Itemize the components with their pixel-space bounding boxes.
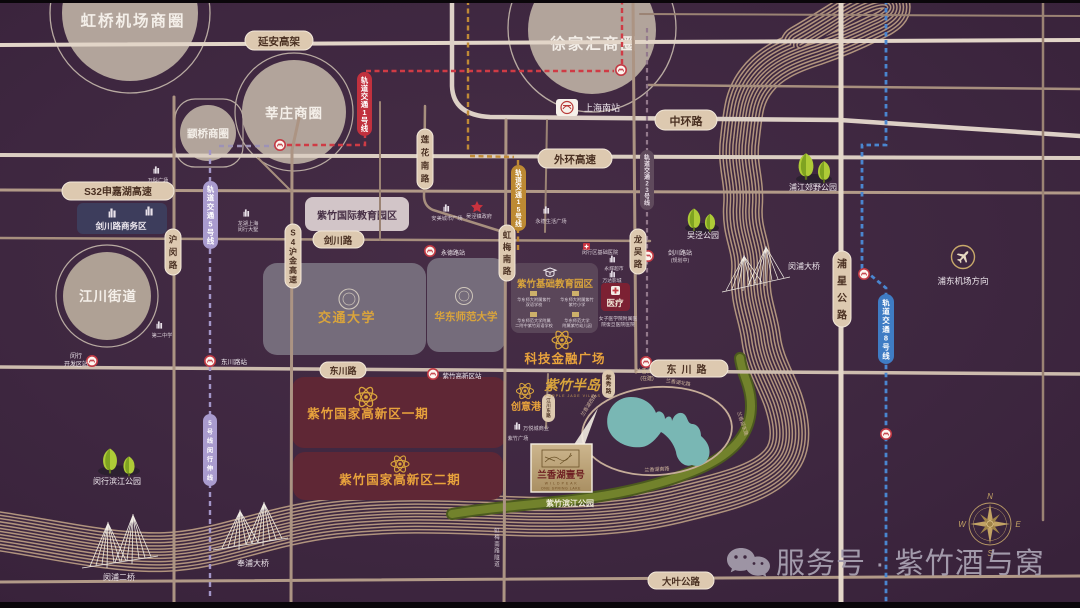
svg-text:N: N xyxy=(987,492,993,501)
svg-text:紫竹小学: 紫竹小学 xyxy=(569,301,586,308)
svg-text:轨道交通8号线: 轨道交通8号线 xyxy=(882,297,890,360)
svg-text:中环路: 中环路 xyxy=(670,114,704,128)
svg-text:江川街道: 江川街道 xyxy=(79,288,137,304)
svg-text:紫竹基础教育园区: 紫竹基础教育园区 xyxy=(517,278,594,290)
svg-text:吴泾镇政府: 吴泾镇政府 xyxy=(466,212,492,220)
svg-text:双语学校: 双语学校 xyxy=(526,301,544,308)
svg-text:轨道交通5号线: 轨道交通5号线 xyxy=(207,184,215,246)
svg-text:闵行: 闵行 xyxy=(70,352,82,360)
svg-text:E: E xyxy=(1015,520,1021,529)
svg-text:永德生活广场: 永德生活广场 xyxy=(535,217,566,225)
svg-text:第二中学: 第二中学 xyxy=(152,331,173,339)
svg-text:安美城市广场: 安美城市广场 xyxy=(431,214,462,222)
svg-text:东川路: 东川路 xyxy=(667,363,712,376)
svg-text:浦江郊野公园: 浦江郊野公园 xyxy=(789,182,837,192)
svg-text:轨道交通15号线: 轨道交通15号线 xyxy=(515,168,522,228)
svg-text:服务号 · 紫竹酒与窝: 服务号 · 紫竹酒与窝 xyxy=(776,547,1045,580)
svg-text:剑川路商务区: 剑川路商务区 xyxy=(94,221,147,231)
svg-text:院復旦医院医院: 院復旦医院医院 xyxy=(601,321,635,328)
svg-text:上海南站: 上海南站 xyxy=(584,102,620,113)
svg-text:交通大学: 交通大学 xyxy=(318,310,376,325)
svg-text:龙湖上海: 龙湖上海 xyxy=(238,219,259,227)
svg-text:华东师范大学: 华东师范大学 xyxy=(435,310,498,323)
svg-text:紫竹滨江公园: 紫竹滨江公园 xyxy=(546,498,594,508)
svg-text:虹梅南路隧道: 虹梅南路隧道 xyxy=(494,527,500,569)
svg-text:闵浦大桥: 闵浦大桥 xyxy=(788,261,820,271)
svg-text:紫竹半岛: 紫竹半岛 xyxy=(544,377,601,393)
svg-text:龙吴路: 龙吴路 xyxy=(633,234,643,269)
svg-text:大叶公路: 大叶公路 xyxy=(662,576,701,588)
svg-text:闵浦二桥: 闵浦二桥 xyxy=(103,572,135,582)
svg-text:兰香湖壹号: 兰香湖壹号 xyxy=(537,469,585,481)
svg-text:女子医学院附属医: 女子医学院附属医 xyxy=(599,315,638,322)
svg-text:江川东路: 江川东路 xyxy=(545,397,551,419)
svg-text:紫竹国际教育园区: 紫竹国际教育园区 xyxy=(317,209,397,222)
svg-text:ONE SPRING LAKE: ONE SPRING LAKE xyxy=(541,487,581,491)
svg-text:紫秀路: 紫秀路 xyxy=(605,374,612,395)
svg-text:莘庄商圈: 莘庄商圈 xyxy=(265,105,323,121)
svg-text:延安高架: 延安高架 xyxy=(257,35,300,48)
svg-text:5号线闵行伸线: 5号线闵行伸线 xyxy=(206,420,214,482)
svg-text:闵行滨江公园: 闵行滨江公园 xyxy=(93,476,141,486)
svg-text:附属紫竹幼儿园: 附属紫竹幼儿园 xyxy=(562,322,591,329)
svg-text:轨道交通1号线: 轨道交通1号线 xyxy=(361,75,369,133)
svg-text:万科广场: 万科广场 xyxy=(148,176,169,184)
svg-text:闵行大墅: 闵行大墅 xyxy=(238,225,259,233)
svg-text:外环高速: 外环高速 xyxy=(553,153,596,166)
svg-text:紫竹广场: 紫竹广场 xyxy=(508,434,529,442)
svg-text:S32申嘉湖高速: S32申嘉湖高速 xyxy=(84,185,152,198)
svg-text:医疗: 医疗 xyxy=(606,298,624,308)
svg-text:万达影城: 万达影城 xyxy=(602,277,621,284)
svg-text:剑川路: 剑川路 xyxy=(323,235,353,247)
svg-text:创意港: 创意港 xyxy=(510,400,542,413)
svg-text:(规划中): (规划中) xyxy=(671,257,690,264)
svg-text:东川路站: 东川路站 xyxy=(221,357,248,366)
svg-text:(在建): (在建) xyxy=(640,375,654,382)
svg-text:东川路: 东川路 xyxy=(329,365,357,376)
svg-text:紫竹国家高新区二期: 紫竹国家高新区二期 xyxy=(339,472,461,487)
svg-text:科技金融广场: 科技金融广场 xyxy=(524,351,605,366)
svg-text:吴泾公园: 吴泾公园 xyxy=(687,231,719,240)
svg-text:紫竹国家高新区一期: 紫竹国家高新区一期 xyxy=(307,406,429,421)
svg-text:W I L D P E A K: W I L D P E A K xyxy=(545,482,578,486)
svg-text:永辉超市: 永辉超市 xyxy=(604,265,623,272)
svg-text:闵行区基础医院: 闵行区基础医院 xyxy=(582,248,619,256)
svg-text:开发区站: 开发区站 xyxy=(64,360,88,368)
svg-text:轨道交通23号线: 轨道交通23号线 xyxy=(644,154,650,208)
svg-text:万悦城商业: 万悦城商业 xyxy=(523,424,549,432)
svg-text:沪闵路: 沪闵路 xyxy=(169,235,178,270)
svg-text:虹桥机场商圈: 虹桥机场商圈 xyxy=(80,11,185,30)
svg-text:颛桥商圈: 颛桥商圈 xyxy=(187,127,229,140)
svg-text:奉浦大桥: 奉浦大桥 xyxy=(237,558,269,568)
svg-text:二附中紫竹双语学校: 二附中紫竹双语学校 xyxy=(515,322,554,329)
svg-text:浦东机场方向: 浦东机场方向 xyxy=(937,276,988,286)
svg-text:永德路站: 永德路站 xyxy=(441,249,465,257)
svg-text:紫竹高新区站: 紫竹高新区站 xyxy=(443,371,483,380)
svg-text:剑川路站: 剑川路站 xyxy=(668,249,692,257)
